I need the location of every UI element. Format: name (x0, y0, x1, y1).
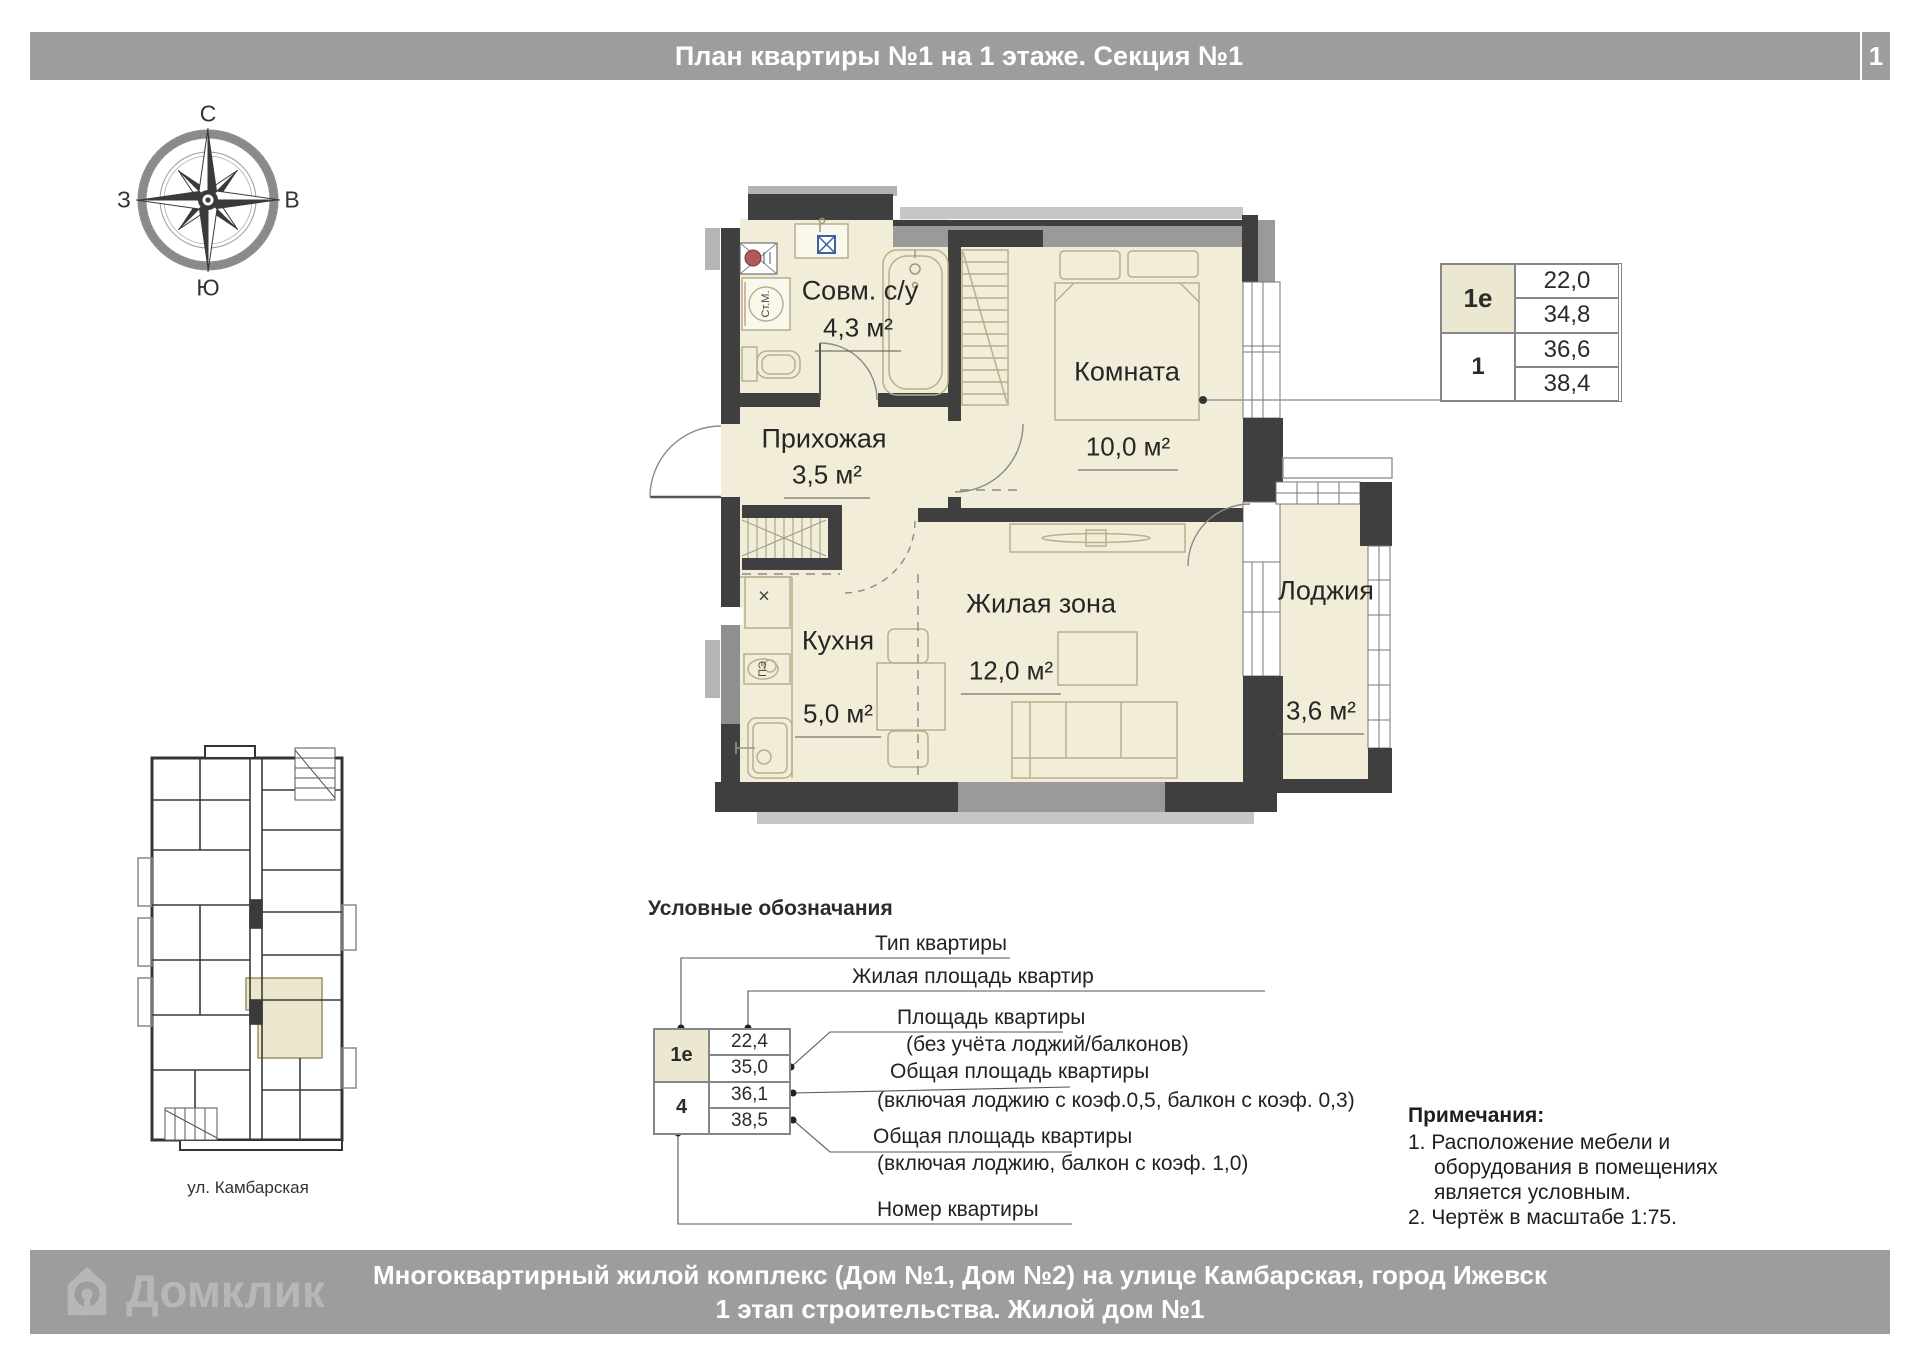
value-living-area: 22,0 (1515, 264, 1619, 298)
washbasin-symbol-icon (818, 236, 835, 253)
legend-label-flat-number: Номер квартиры (877, 1198, 1039, 1222)
legend-v3: 38,5 (709, 1108, 790, 1134)
notes-block: Примечания: 1. Расположение мебели и обо… (1408, 1104, 1808, 1230)
bedroom-window (1243, 282, 1280, 418)
room-label-bathroom: Совм. с/у (802, 276, 919, 307)
legend-number-cell: 4 (654, 1082, 709, 1135)
compass-south-label: Ю (196, 275, 219, 302)
legend-v0: 22,4 (709, 1029, 790, 1055)
legend-label-flat-area-sub: (без учёта лоджий/балконов) (906, 1033, 1189, 1057)
riser-shaft-icon (740, 243, 777, 274)
room-label-hall: Прихожая (761, 424, 886, 455)
legend-title: Условные обозначания (648, 897, 893, 921)
room-label-bedroom: Комната (1074, 357, 1180, 388)
compass-east-label: В (284, 187, 299, 214)
room-area-hall: 3,5 м² (784, 460, 870, 499)
room-area-living: 12,0 м² (961, 656, 1061, 695)
legend-label-flat-area: Площадь квартиры (897, 1006, 1085, 1030)
brand-watermark: Домклик (58, 1262, 325, 1320)
flat-type-cell: 1е (1441, 264, 1515, 333)
note-item-1: 1. Расположение мебели и оборудования в … (1408, 1130, 1808, 1205)
legend-v1: 35,0 (709, 1055, 790, 1081)
street-label: ул. Камбарская (187, 1178, 309, 1198)
footer-line-1: Многоквартирный жилой комплекс (Дом №1, … (373, 1258, 1547, 1292)
room-area-bathroom: 4,3 м² (815, 313, 901, 352)
notes-title: Примечания: (1408, 1104, 1808, 1128)
legend-sample-table: 1е 22,4 35,0 4 36,1 38,5 (653, 1028, 791, 1135)
page-title: План квартиры №1 на 1 этаже. Секция №1 (58, 41, 1860, 72)
footer-line-2: 1 этап строительства. Жилой дом №1 (716, 1292, 1205, 1326)
value-total2: 38,4 (1515, 367, 1619, 401)
legend-label-total2: Общая площадь квартиры (873, 1125, 1132, 1149)
page-number: 1 (1860, 32, 1890, 80)
domclick-logo-icon (58, 1262, 116, 1320)
room-area-loggia: 3,6 м² (1278, 696, 1364, 735)
room-area-bedroom: 10,0 м² (1078, 432, 1178, 471)
living-window (1243, 562, 1280, 676)
legend-label-total1: Общая площадь квартиры (890, 1060, 1149, 1084)
flat-info-table: 1е 22,0 34,8 1 36,6 38,4 (1440, 263, 1622, 402)
brand-name: Домклик (126, 1264, 325, 1318)
legend-label-living-area: Жилая площадь квартир (852, 965, 1094, 989)
value-total1: 36,6 (1515, 333, 1619, 367)
legend-label-total2-sub: (включая лоджию, балкон с коэф. 1,0) (877, 1152, 1248, 1176)
legend-label-type: Тип квартиры (875, 932, 1007, 956)
legend-v2: 36,1 (709, 1082, 790, 1108)
room-label-living: Жилая зона (966, 589, 1116, 620)
note-item-2: 2. Чертёж в масштабе 1:75. (1408, 1205, 1808, 1230)
header-bar: План квартиры №1 на 1 этаже. Секция №1 1 (30, 32, 1890, 80)
legend-label-total1-sub: (включая лоджию с коэф.0,5, балкон с коэ… (877, 1089, 1355, 1113)
compass-rose-icon (136, 128, 280, 272)
key-plan (138, 746, 356, 1150)
washer-label: Ст.М. (760, 290, 772, 317)
value-flat-area: 34,8 (1515, 298, 1619, 332)
stove-label: ПЭ (757, 661, 769, 677)
room-label-loggia: Лоджия (1278, 576, 1374, 607)
vent-label: × (758, 586, 770, 609)
flat-number-cell: 1 (1441, 333, 1515, 402)
legend-type-cell: 1е (654, 1029, 709, 1082)
room-area-kitchen: 5,0 м² (795, 699, 881, 738)
floor-plan-page: План квартиры №1 на 1 этаже. Секция №1 1… (0, 0, 1920, 1354)
compass-west-label: З (117, 187, 131, 214)
room-label-kitchen: Кухня (802, 626, 874, 657)
compass-north-label: С (200, 101, 217, 128)
